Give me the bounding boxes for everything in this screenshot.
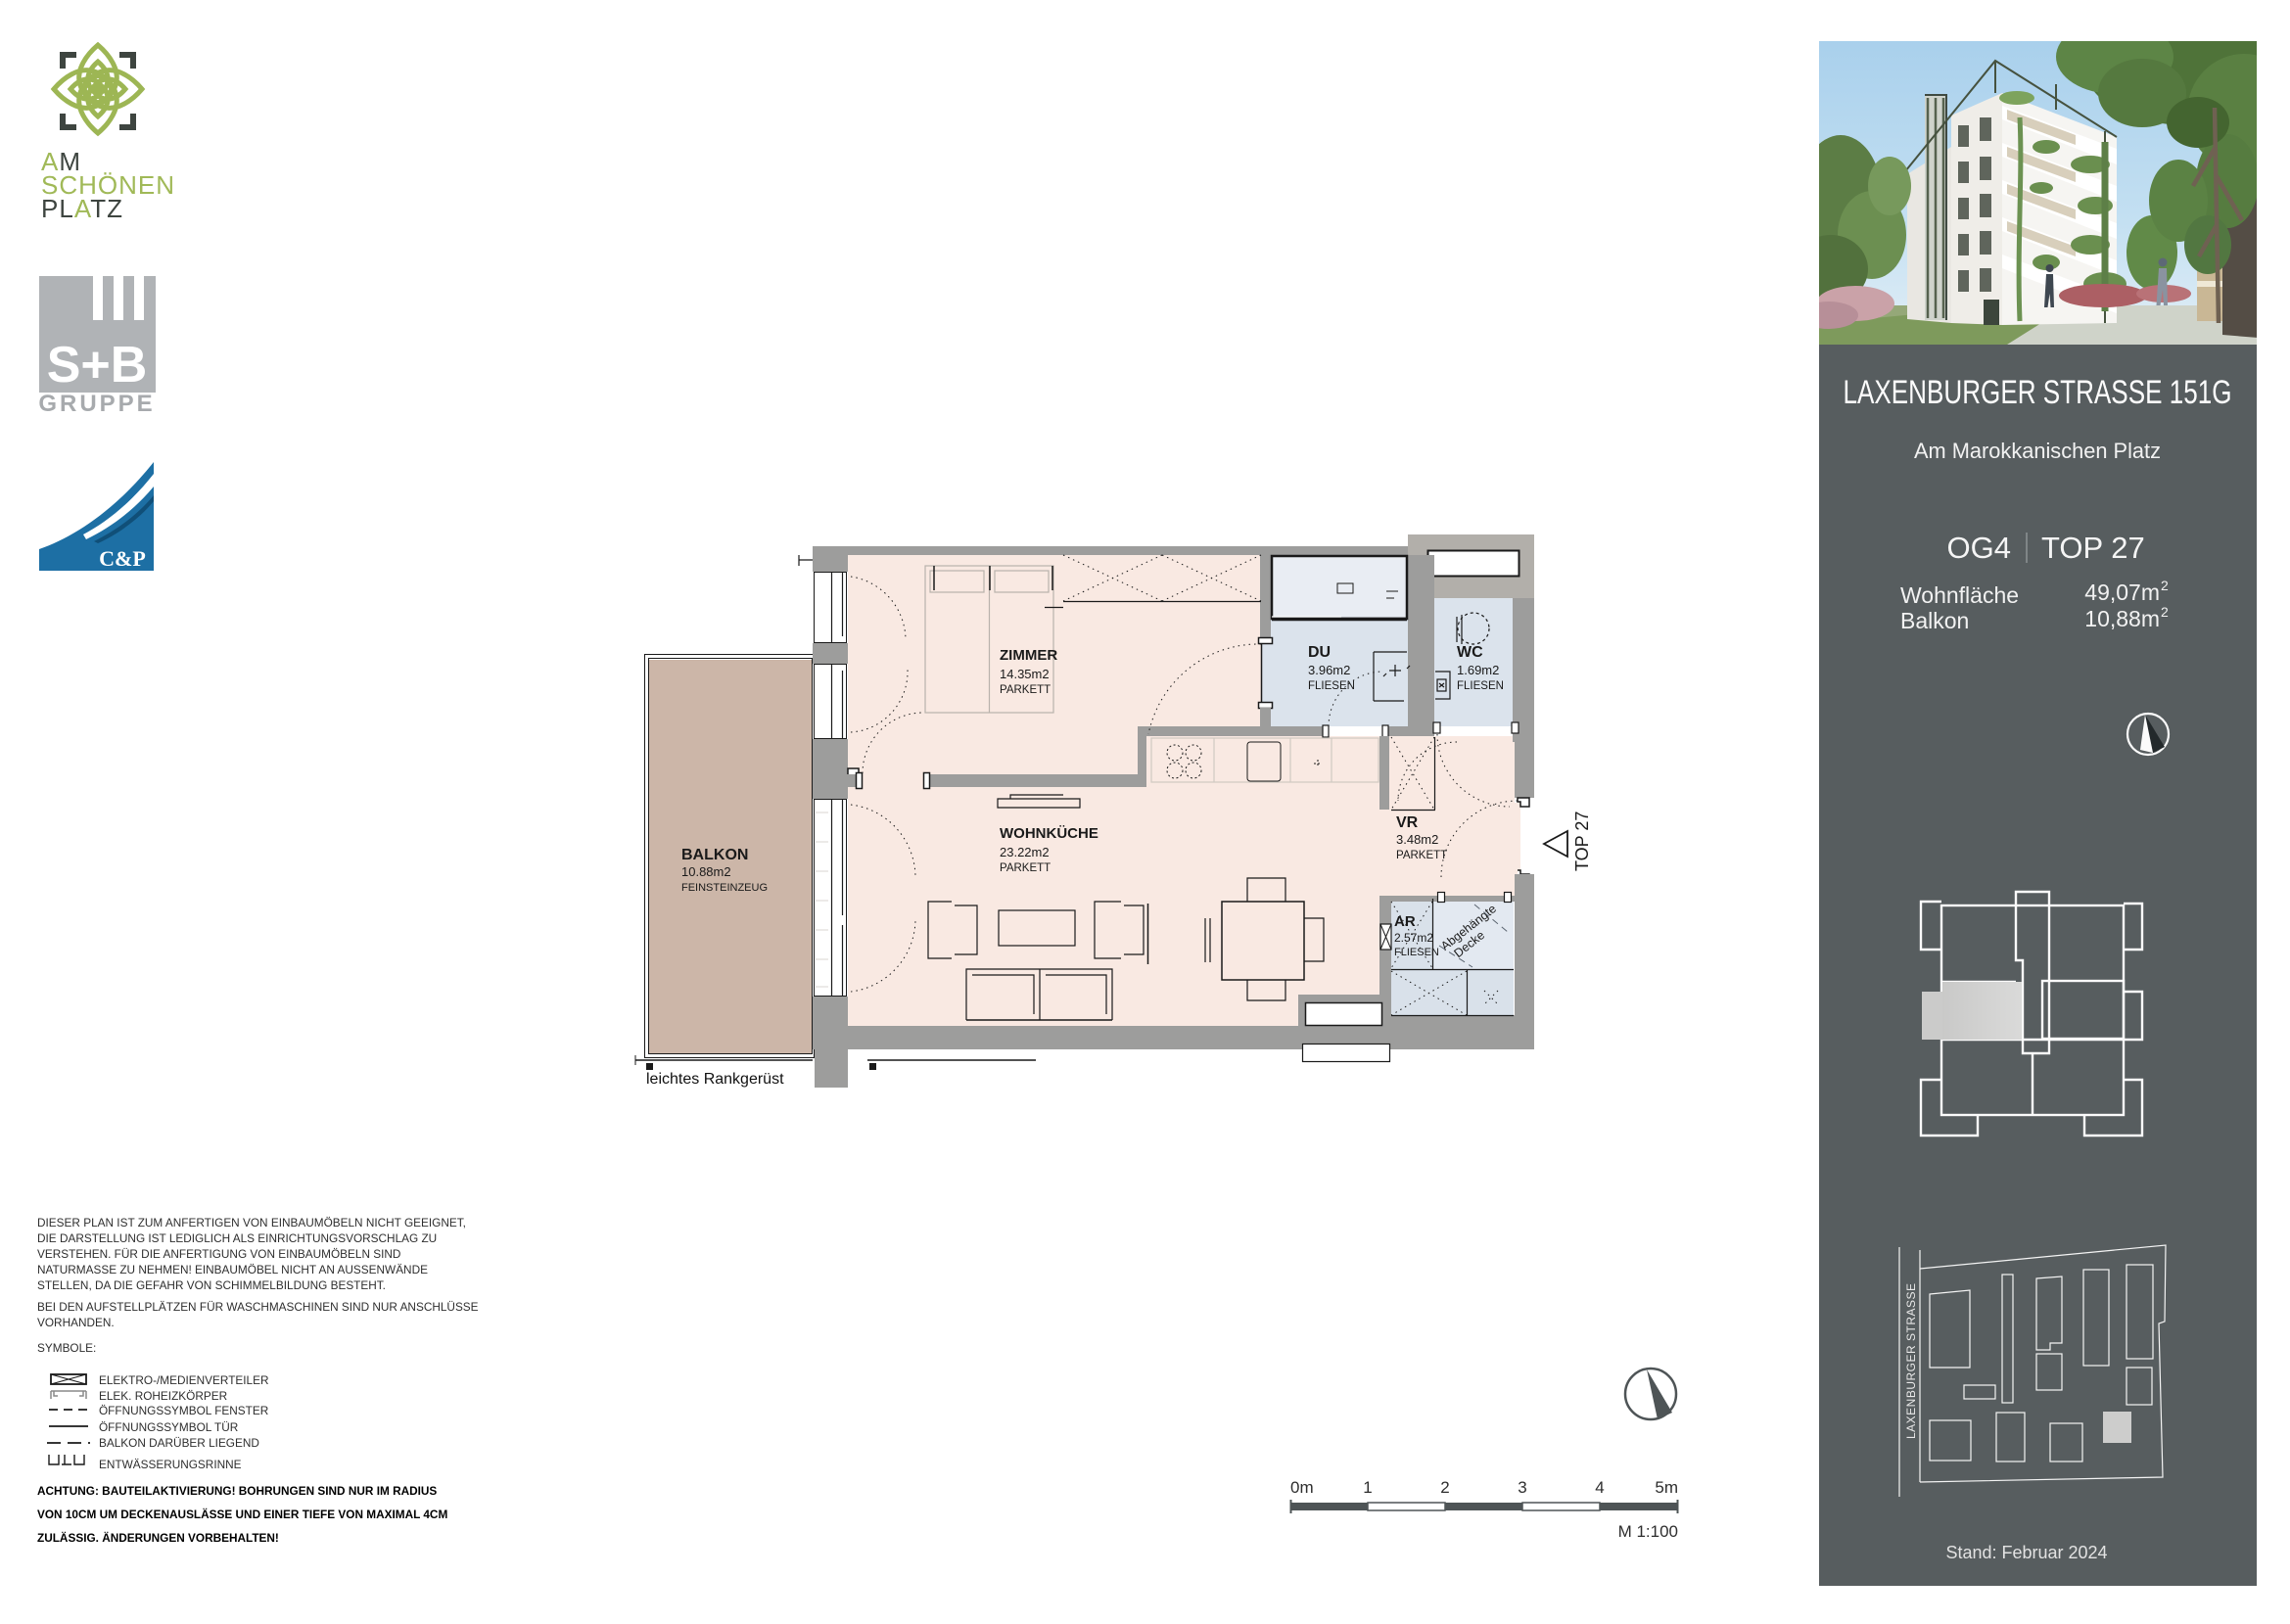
svg-text:2: 2: [2161, 578, 2169, 593]
svg-text:3: 3: [1518, 1478, 1526, 1497]
svg-text:WC: WC: [1457, 644, 1483, 661]
svg-text:FLIESEN: FLIESEN: [1308, 680, 1355, 692]
svg-text:AR: AR: [1394, 913, 1416, 930]
svg-text:BALKON DARÜBER LIEGEND: BALKON DARÜBER LIEGEND: [99, 1436, 259, 1450]
svg-text:LAXENBURGER STRASSE 151G: LAXENBURGER STRASSE 151G: [1844, 374, 2232, 411]
svg-text:leichtes Rankgerüst: leichtes Rankgerüst: [646, 1071, 784, 1088]
svg-text:10,88m: 10,88m: [2084, 606, 2160, 631]
svg-text:NATURMASSE ZU NEHMEN! EINBAUMÖ: NATURMASSE ZU NEHMEN! EINBAUMÖBEL NICHT …: [37, 1263, 428, 1276]
svg-text:VERSTEHEN. FÜR DIE ANFERTIGUNG: VERSTEHEN. FÜR DIE ANFERTIGUNG VON EINBA…: [37, 1247, 400, 1261]
svg-text:M 1:100: M 1:100: [1618, 1522, 1678, 1541]
svg-text:ÖFFNUNGSSYMBOL TÜR: ÖFFNUNGSSYMBOL TÜR: [99, 1420, 238, 1434]
svg-text:ENTWÄSSERUNGSRINNE: ENTWÄSSERUNGSRINNE: [99, 1458, 242, 1471]
svg-text:4: 4: [1595, 1478, 1604, 1497]
svg-text:10.88m2: 10.88m2: [681, 864, 731, 879]
svg-text:ZIMMER: ZIMMER: [1000, 647, 1057, 664]
svg-text:PARKETT: PARKETT: [1000, 684, 1051, 696]
svg-text:TOP 27: TOP 27: [1572, 812, 1592, 871]
svg-text:LAXENBURGER STRASSE: LAXENBURGER STRASSE: [1904, 1282, 1918, 1439]
svg-text:5m: 5m: [1655, 1478, 1678, 1497]
svg-text:VON 10CM UM DECKENAUSLÄSSE UN: VON 10CM UM DECKENAUSLÄSSE UND EINER TIE…: [37, 1508, 447, 1521]
svg-text:Wohnfläche: Wohnfläche: [1900, 582, 2019, 608]
svg-text:PARKETT: PARKETT: [1396, 850, 1447, 861]
svg-text:2.57m2: 2.57m2: [1394, 931, 1433, 945]
svg-text:SYMBOLE:: SYMBOLE:: [37, 1341, 96, 1355]
svg-text:23.22m2: 23.22m2: [1000, 845, 1050, 859]
svg-text:C&P: C&P: [99, 546, 146, 571]
svg-text:DU: DU: [1308, 644, 1331, 661]
svg-text:VR: VR: [1396, 814, 1419, 831]
svg-text:WOHNKÜCHE: WOHNKÜCHE: [1000, 825, 1098, 842]
svg-text:OG4: OG4: [1947, 531, 2011, 565]
svg-text:STELLEN, DA DIE GEFAHR VON SCH: STELLEN, DA DIE GEFAHR VON SCHIMMELBILDU…: [37, 1278, 386, 1292]
svg-text:ELEK. ROHEIZKÖRPER: ELEK. ROHEIZKÖRPER: [99, 1389, 227, 1403]
svg-text:Stand: Februar 2024: Stand: Februar 2024: [1945, 1543, 2107, 1562]
svg-text:3.96m2: 3.96m2: [1308, 663, 1350, 677]
svg-text:PLATZ: PLATZ: [41, 194, 123, 223]
svg-text:ÖFFNUNGSSYMBOL FENSTER: ÖFFNUNGSSYMBOL FENSTER: [99, 1404, 268, 1417]
svg-text:DIESER PLAN IST ZUM ANFERTIGEN: DIESER PLAN IST ZUM ANFERTIGEN VON EINBA…: [37, 1216, 466, 1230]
svg-text:GRUPPE: GRUPPE: [38, 391, 155, 417]
svg-text:ACHTUNG: BAUTEILAKTIVIERUNG! B: ACHTUNG: BAUTEILAKTIVIERUNG! BOHRUNGEN S…: [37, 1484, 437, 1498]
svg-text:ELEKTRO-/MEDIENVERTEILER: ELEKTRO-/MEDIENVERTEILER: [99, 1373, 269, 1387]
svg-text:DIE DARSTELLUNG IST LEDIGLICH: DIE DARSTELLUNG IST LEDIGLICH ALS EINRIC…: [37, 1231, 437, 1245]
svg-text:3.48m2: 3.48m2: [1396, 832, 1438, 847]
svg-text:S+B: S+B: [47, 337, 148, 394]
svg-text:Balkon: Balkon: [1900, 608, 1969, 633]
svg-text:BALKON: BALKON: [681, 847, 748, 863]
svg-text:VORHANDEN.: VORHANDEN.: [37, 1316, 115, 1329]
svg-text:2: 2: [2161, 604, 2169, 620]
svg-text:Am Marokkanischen Platz: Am Marokkanischen Platz: [1914, 439, 2161, 463]
svg-text:49,07m: 49,07m: [2084, 580, 2160, 605]
svg-text:BEI DEN AUFSTELLPLÄTZEN FÜR WA: BEI DEN AUFSTELLPLÄTZEN FÜR WASCHMASCHIN…: [37, 1300, 479, 1314]
svg-text:1.69m2: 1.69m2: [1457, 663, 1499, 677]
svg-text:ZULÄSSIG. ÄNDERUNGEN VORBEHALT: ZULÄSSIG. ÄNDERUNGEN VORBEHALTEN!: [37, 1531, 279, 1545]
svg-text:0m: 0m: [1290, 1478, 1314, 1497]
svg-text:TOP 27: TOP 27: [2041, 531, 2145, 565]
svg-text:FEINSTEINZEUG: FEINSTEINZEUG: [681, 882, 768, 894]
svg-text:14.35m2: 14.35m2: [1000, 667, 1050, 681]
svg-text:1: 1: [1363, 1478, 1372, 1497]
svg-text:PARKETT: PARKETT: [1000, 862, 1051, 874]
svg-text:FLIESEN: FLIESEN: [1457, 680, 1504, 692]
svg-text:2: 2: [1440, 1478, 1449, 1497]
